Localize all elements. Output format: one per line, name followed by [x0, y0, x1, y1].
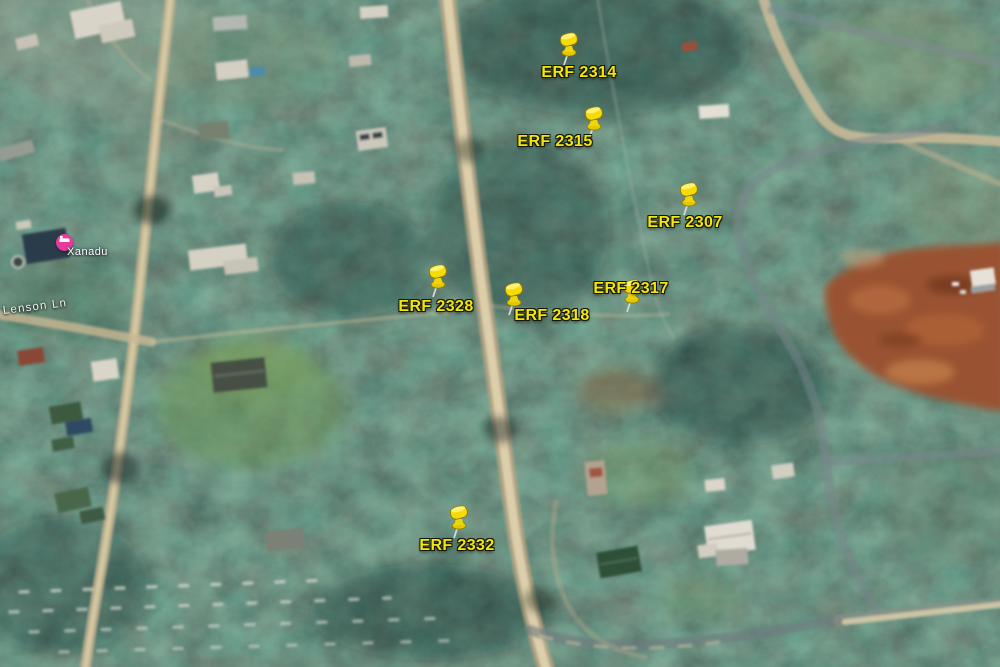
map-pin-erf-2307[interactable] [677, 182, 701, 216]
map-canvas[interactable]: Lenson Ln Xanadu ERF 2314 [0, 0, 1000, 667]
poi-label: Xanadu [67, 246, 108, 258]
pin-label-erf-2314: ERF 2314 [541, 64, 616, 82]
map-pin-erf-2332[interactable] [447, 505, 471, 539]
pin-label-erf-2317: ERF 2317 [593, 280, 668, 298]
map-pin-erf-2314[interactable] [557, 32, 581, 66]
satellite-imagery [0, 0, 1000, 667]
poi-marker-xanadu[interactable]: Xanadu [56, 231, 73, 251]
pushpin-icon [447, 505, 471, 539]
pin-label-erf-2307: ERF 2307 [647, 214, 722, 232]
pin-label-erf-2328: ERF 2328 [398, 298, 473, 316]
pin-label-erf-2315: ERF 2315 [517, 133, 592, 151]
pushpin-icon [677, 182, 701, 216]
pushpin-icon [426, 264, 450, 298]
map-pin-erf-2328[interactable] [426, 264, 450, 298]
pin-label-erf-2318: ERF 2318 [514, 307, 589, 325]
pushpin-icon [557, 32, 581, 66]
pin-label-erf-2332: ERF 2332 [419, 537, 494, 555]
